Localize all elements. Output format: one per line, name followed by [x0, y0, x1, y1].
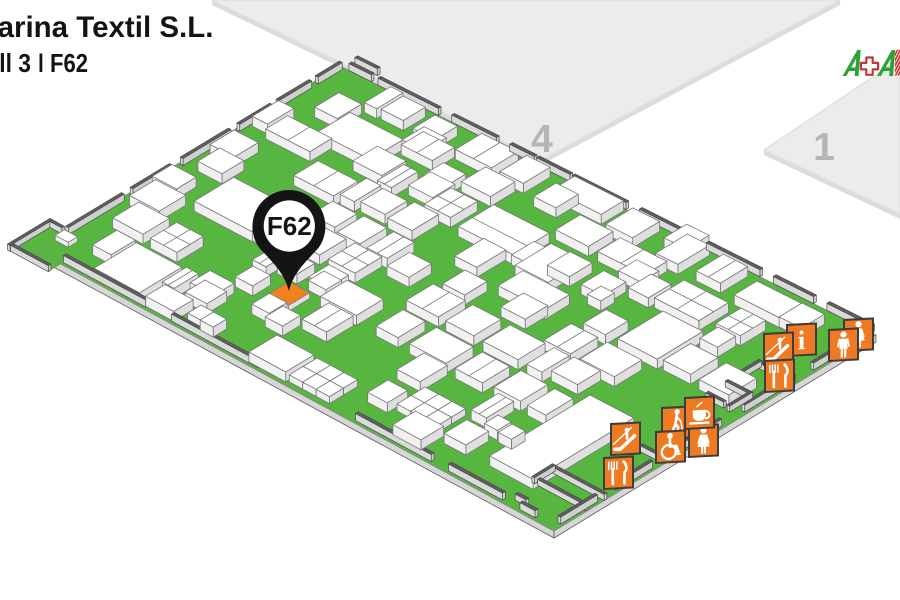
svg-text:i: i — [798, 325, 806, 355]
svg-text:Marina Textil S.L.: Marina Textil S.L. — [0, 11, 213, 44]
svg-text:F62: F62 — [267, 211, 312, 241]
svg-text:F62: F62 — [50, 48, 88, 78]
svg-text:Hall 3: Hall 3 — [0, 48, 31, 78]
svg-text:1: 1 — [813, 126, 835, 169]
